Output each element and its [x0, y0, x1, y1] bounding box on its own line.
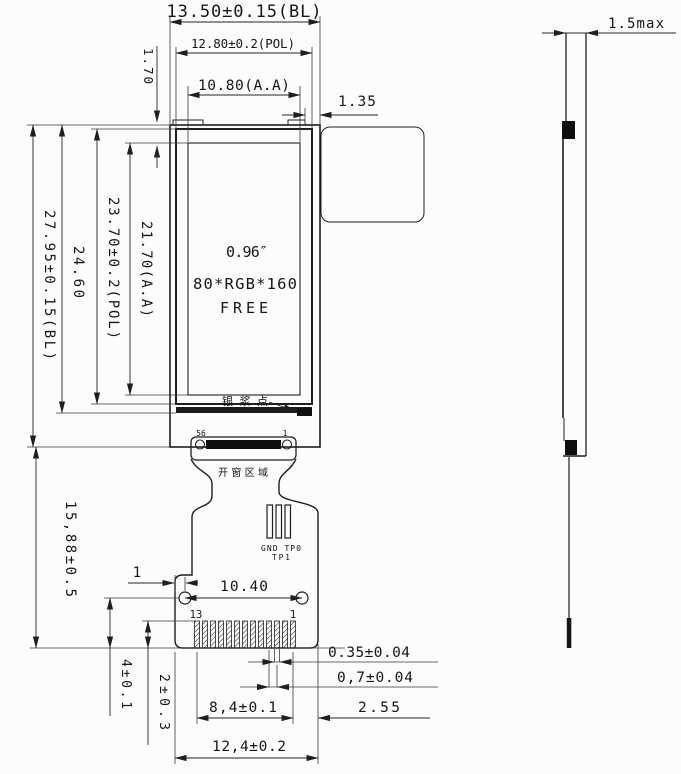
bottom-pin1-label: 1 [290, 609, 296, 621]
polarizer-outline [176, 129, 312, 404]
window-area-label: 开窗区域 [218, 466, 268, 479]
dim-aa-height: 21.70(A.A) [138, 221, 154, 317]
dim-aa-width: 10.80(A.A) [198, 78, 290, 94]
silver-paste-label: 银浆点 [222, 394, 268, 408]
dim-fpc-length: 15,88±0.5 [62, 501, 78, 597]
connector-contact-bar [206, 440, 281, 449]
fpc-top-connector: 56 1 [191, 429, 296, 460]
side-profile [562, 33, 586, 648]
dim-glass-height: 24.60 [70, 246, 86, 298]
side-top-chip [562, 121, 575, 139]
dim-pol-height: 23.70±0.2(POL) [105, 197, 121, 339]
dim-pin-width: 0.35±0.04 [328, 645, 410, 661]
lcd-module-mechanical-drawing: 0.96″ 80*RGB*160 FREE 银浆点 56 1 开窗区域 [0, 0, 681, 774]
panel-resolution-label: 80*RGB*160 [193, 275, 297, 293]
bottom-pin13-label: 13 [190, 609, 203, 621]
side-bottom-chip [565, 440, 577, 455]
dim-pin-pitch: 0,7±0.04 [337, 670, 413, 686]
dim-bl-height: 27.95±0.15(BL) [41, 210, 57, 360]
dim-pol-width: 12.80±0.2(POL) [191, 36, 295, 51]
panel-size-label: 0.96″ [226, 243, 268, 261]
dim-plate-width: 12,4±0.2 [212, 739, 286, 755]
dim-bl-width: 13.50±0.15(BL) [167, 2, 322, 22]
dim-hole-pitch: 10.40 [220, 579, 268, 595]
fpc-body: 开窗区域 GND TP0 TP1 13 1 [175, 459, 318, 648]
dim-pin-row-offset: 4±0.1 [118, 659, 133, 709]
dimensions-bottom: 1 10.40 4±0.1 2±0.3 0.35±0.04 [30, 565, 438, 764]
panel-name-label: FREE [220, 299, 268, 317]
drawing-canvas: 0.96″ 80*RGB*160 FREE 银浆点 56 1 开窗区域 [0, 0, 681, 774]
testpad-tp1-label: TP1 [272, 553, 290, 562]
dim-edge-margin: 2.55 [358, 700, 400, 716]
side-fpc-tip [567, 618, 572, 648]
panel-labels: 0.96″ 80*RGB*160 FREE [193, 243, 297, 317]
dim-pin-length: 2±0.3 [156, 674, 171, 730]
adhesive-tape-hatched-area [321, 127, 424, 222]
dimensions-left: 27.95±0.15(BL) 24.60 23.70±0.2(POL) 21.7… [27, 125, 188, 648]
front-view: 0.96″ 80*RGB*160 FREE 银浆点 56 1 开窗区域 [27, 2, 438, 764]
connector-pins [195, 621, 296, 648]
test-pads [267, 505, 291, 538]
connector-pin1-label: 1 [283, 429, 288, 438]
dim-thickness: 1.5max [608, 16, 664, 32]
side-view: 1.5max [542, 16, 676, 648]
silver-paste-dot [297, 408, 312, 416]
dim-hole-offset: 1 [133, 565, 141, 581]
testpad-gnd-tp0-label: GND TP0 [261, 544, 301, 553]
dim-pin-span: 8,4±0.1 [209, 700, 277, 716]
connector-pin56-label: 56 [196, 429, 206, 438]
dim-top-margin: 1.70 [141, 48, 156, 84]
active-area-outline [188, 143, 300, 395]
dim-tab-width: 1.35 [338, 94, 376, 110]
